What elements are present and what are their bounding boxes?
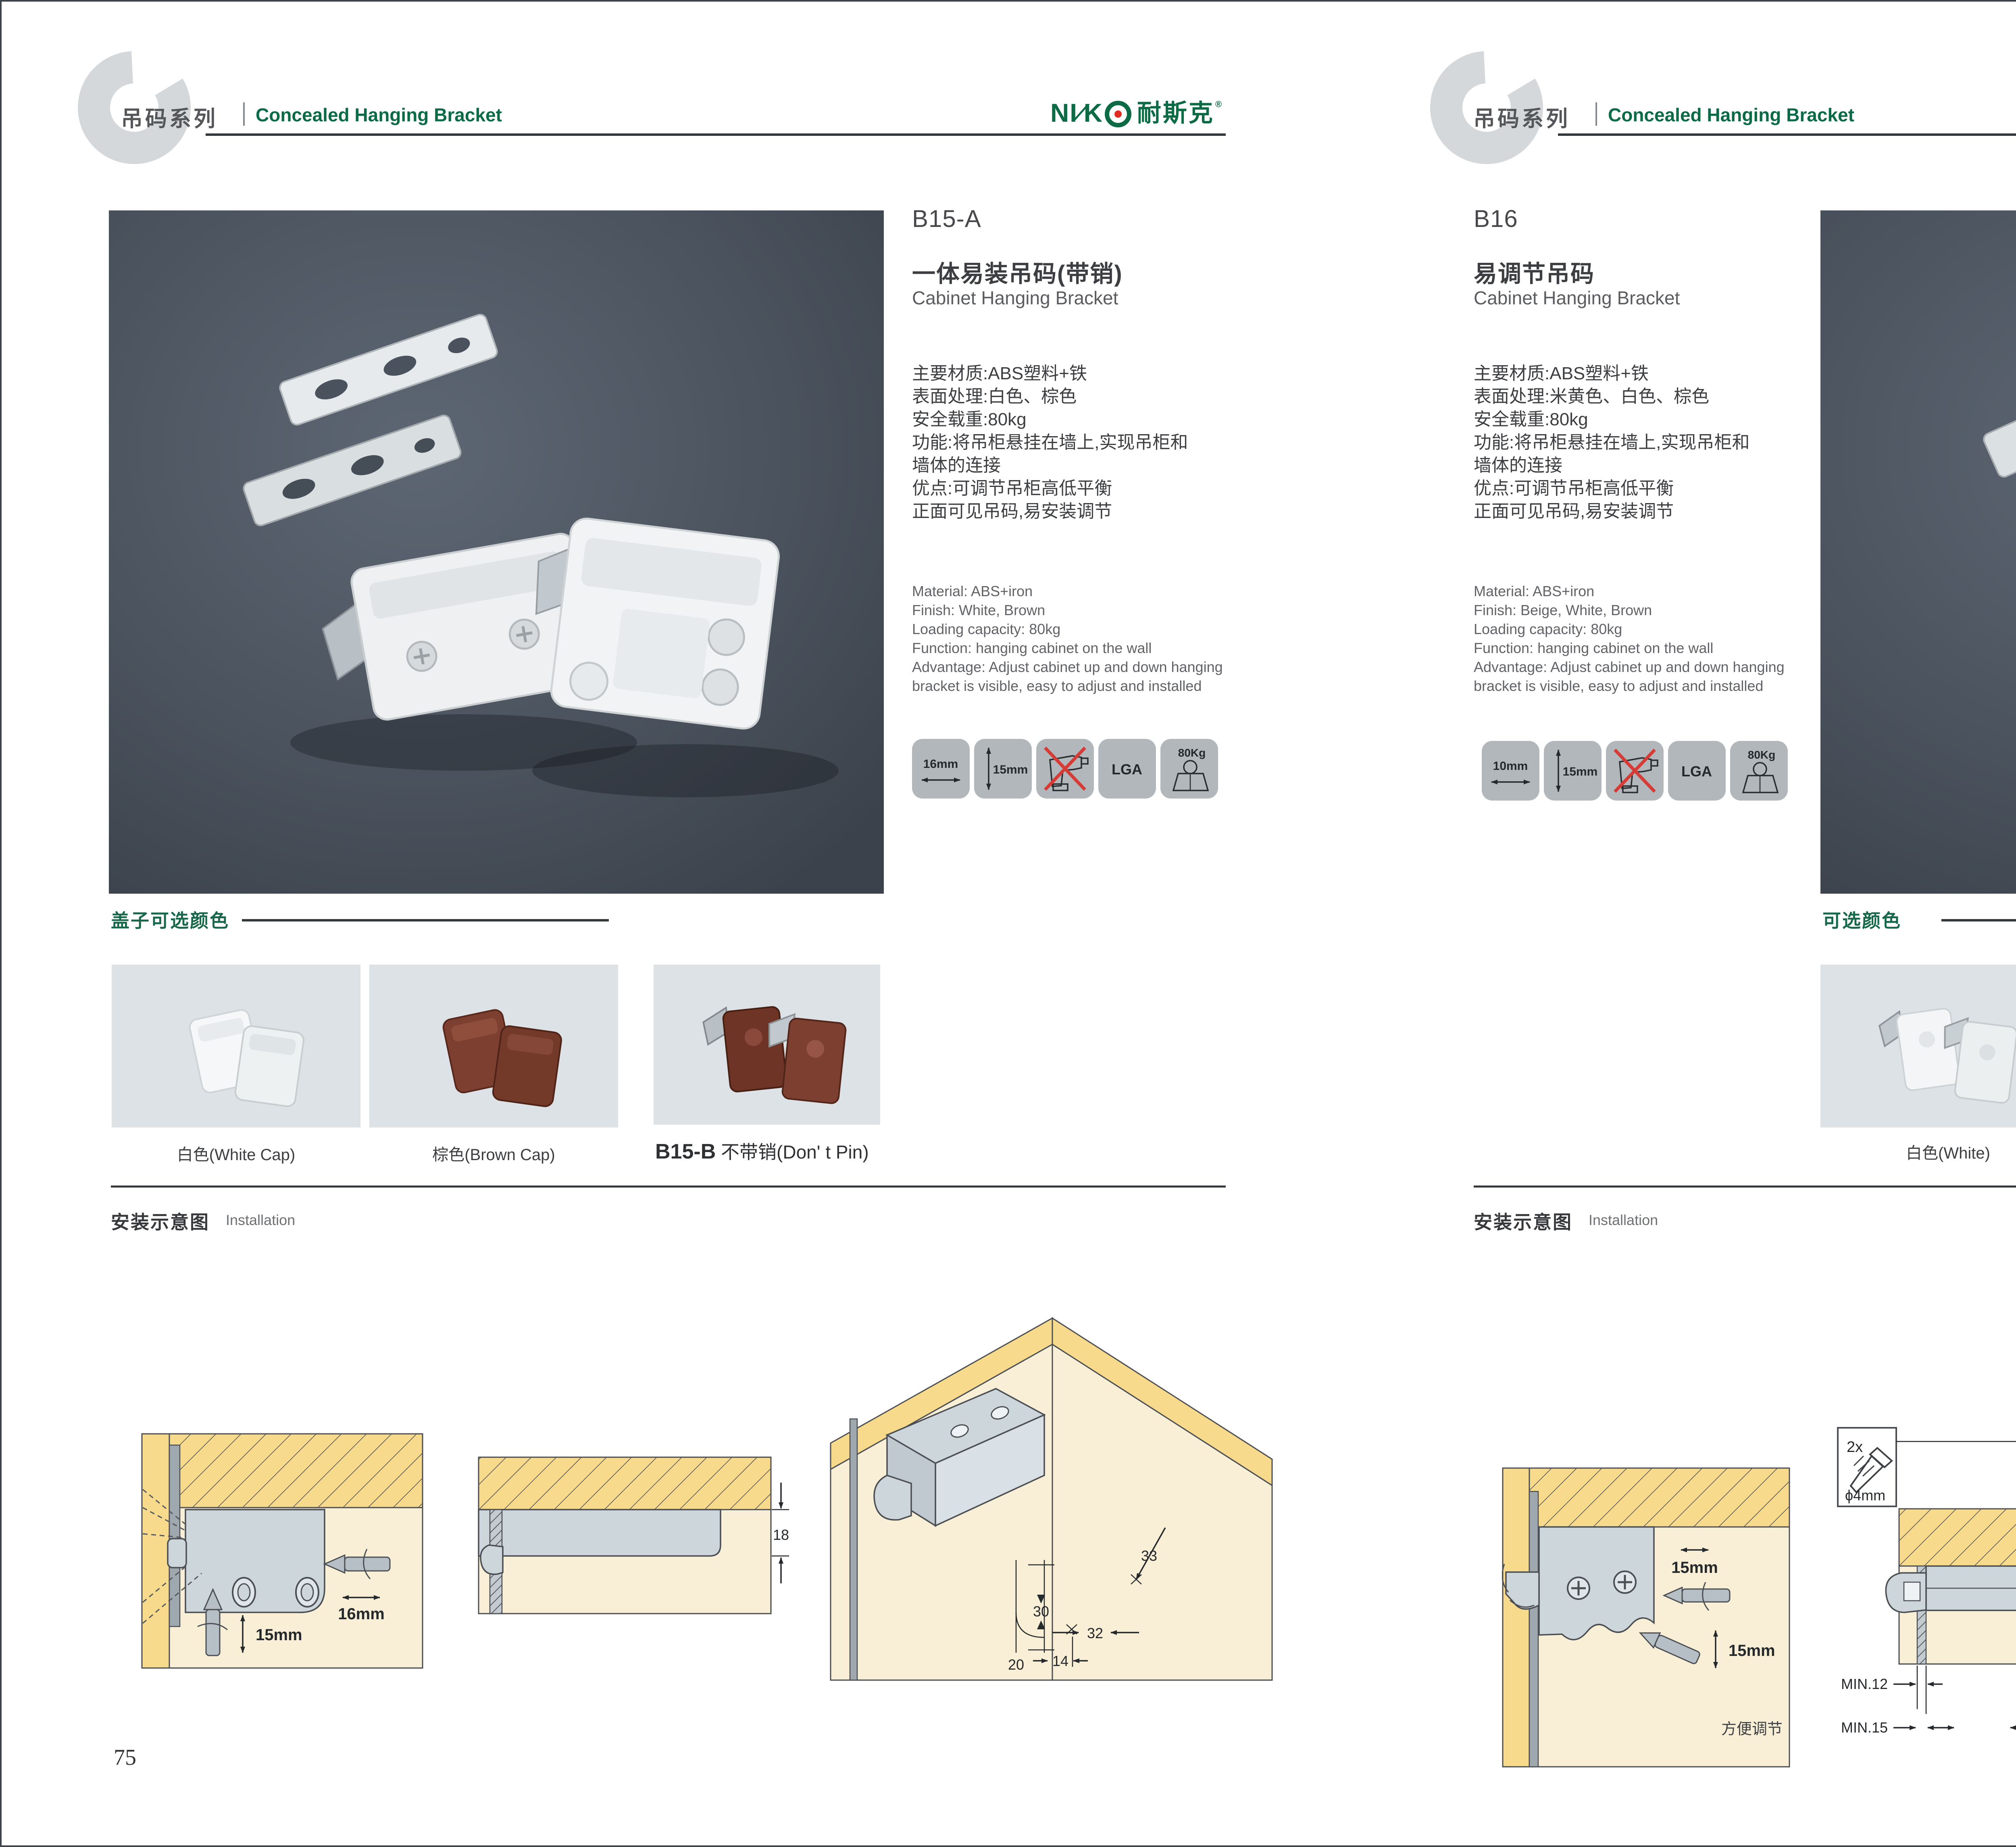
badge-no-drill-icon [1036,739,1094,799]
spec-line: Loading capacity: 80kg [1474,620,1837,639]
svg-text:15mm: 15mm [993,763,1028,776]
series-title-en: Concealed Hanging Bracket [256,104,502,126]
spec-line: 优点:可调节吊柜高低平衡 [912,477,1259,500]
svg-text:32: 32 [1087,1625,1103,1641]
registered-mark: ® [1215,100,1222,109]
spec-line: Finish: Beige, White, Brown [1474,601,1837,620]
badge-lga-icon: LGA [1668,741,1726,801]
badge-no-drill-icon [1606,741,1664,801]
product-name-en: Cabinet Hanging Bracket [1474,287,1680,309]
svg-text:2x: 2x [1847,1439,1863,1456]
badge-width-icon: 16mm [912,739,970,799]
variant-name: 不带销(Don' t Pin) [721,1142,869,1163]
colors-heading: 可选颜色 [1822,906,1901,933]
spec-line: 墙体的连接 [912,454,1259,477]
svg-text:LGA: LGA [1681,763,1712,780]
swatch-caption: 白色(White Cap) [112,1142,360,1165]
spec-line: Loading capacity: 80kg [912,620,1275,639]
spec-line: 正面可见吊码,易安装调节 [1474,500,1820,523]
spec-line: Function: hanging cabinet on the wall [912,639,1275,657]
install-diagram-screw-section: 2x ϕ4mm 19 [1837,1427,2016,1735]
svg-text:20: 20 [1008,1656,1024,1673]
spec-line: 优点:可调节吊柜高低平衡 [1474,477,1820,500]
spec-line: 表面处理:米黄色、白色、棕色 [1474,385,1820,408]
install-heading-zh: 安装示意图 [1474,1208,1572,1234]
spec-line: 主要材质:ABS塑料+铁 [1474,362,1820,385]
spec-line: Finish: White, Brown [912,601,1275,620]
svg-text:15mm: 15mm [1563,765,1598,778]
svg-text:15mm: 15mm [1729,1642,1775,1660]
install-heading-zh: 安装示意图 [111,1208,210,1234]
install-diagram-top-section: 18 [478,1435,790,1614]
spec-line: 墙体的连接 [1474,454,1820,477]
spec-line: 安全载重:80kg [912,408,1259,431]
page-left: 吊码系列 Concealed Hanging Bracket NI∕K耐斯克® [0,0,1352,1847]
svg-text:15mm: 15mm [256,1626,302,1644]
product-name-zh: 一体易装吊码(带销) [912,255,1123,289]
svg-text:80Kg: 80Kg [1178,747,1206,759]
variant-code: B15-B [655,1140,716,1163]
product-photo-right [1820,210,2016,894]
badge-height-icon: 15mm [974,739,1032,799]
install-diagram-wall-section: 15mm 15mm 方便调节 [1502,1467,1790,1768]
swatch-caption: 棕色(Brown Cap) [369,1142,618,1165]
svg-text:14: 14 [1052,1653,1068,1669]
svg-text:10mm: 10mm [1493,759,1528,773]
spec-line: 功能:将吊柜悬挂在墙上,实现吊柜和 [1474,431,1820,454]
product-code: B16 [1474,205,1518,233]
color-swatch-brown [369,965,618,1127]
product-name-en: Cabinet Hanging Bracket [912,287,1118,309]
colors-heading: 盖子可选颜色 [111,906,229,933]
header-divider [1595,102,1597,126]
badge-load-icon: 80Kg [1730,741,1788,801]
feature-badges: 10mm 15mm LGA [1482,741,1792,801]
product-name-zh: 易调节吊码 [1474,255,1595,289]
specs-zh: 主要材质:ABS塑料+铁 表面处理:白色、棕色 安全载重:80kg 功能:将吊柜… [912,362,1259,523]
spec-line: 主要材质:ABS塑料+铁 [912,362,1259,385]
svg-text:ϕ4mm: ϕ4mm [1845,1487,1885,1504]
svg-text:16mm: 16mm [923,757,958,771]
spec-line: Advantage: Adjust cabinet up and down ha… [1474,657,1837,676]
swatch-caption: 白色(White) [1820,1140,2016,1163]
badge-lga-icon: LGA [1098,739,1156,799]
spec-line: Advantage: Adjust cabinet up and down ha… [912,657,1275,676]
series-title-zh: 吊码系列 [1473,101,1570,133]
install-rule [1474,1186,2016,1188]
product-code: B15-A [912,205,981,233]
brand-o-icon [1105,101,1131,127]
spec-line: Function: hanging cabinet on the wall [1474,639,1837,657]
svg-text:LGA: LGA [1112,761,1142,778]
brand-logo: NI∕K耐斯克® [1050,100,1222,127]
page-right: 吊码系列 Concealed Hanging Bracket NI∕K耐斯克® … [1352,0,2016,1847]
svg-text:MIN.15: MIN.15 [1841,1719,1888,1735]
header-rule [206,133,1226,136]
specs-en: Material: ABS+iron Finish: White, Brown … [912,582,1275,695]
badge-load-icon: 80Kg [1160,739,1218,799]
feature-badges: 16mm 15mm LGA [912,739,1223,799]
svg-text:16mm: 16mm [338,1605,385,1623]
spec-line: bracket is visible, easy to adjust and i… [1474,676,1837,695]
brand-latin: NI [1050,100,1078,126]
spec-line: Material: ABS+iron [1474,582,1837,601]
color-swatch-white [112,965,360,1127]
colors-rule [1941,919,2016,921]
svg-text:30: 30 [1033,1603,1049,1620]
colors-rule [242,919,609,921]
spec-line: 安全载重:80kg [1474,408,1820,431]
catalog-spread: 吊码系列 Concealed Hanging Bracket NI∕K耐斯克® [0,0,2016,1847]
variant-caption: B15-B 不带销(Don' t Pin) [655,1138,869,1164]
install-diagram-cabinet-3d: 30 33 32 20 14 [827,1302,1274,1681]
svg-text:18: 18 [773,1527,789,1543]
svg-text:15mm: 15mm [1671,1559,1718,1577]
badge-height-icon: 15mm [1544,741,1602,801]
header-rule [1558,133,2016,136]
brand-red-dot-icon [1114,110,1122,118]
header-divider [243,102,245,126]
spec-line: Material: ABS+iron [912,582,1275,601]
install-heading-en: Installation [226,1212,295,1229]
spec-line: 表面处理:白色、棕色 [912,385,1259,408]
svg-text:80Kg: 80Kg [1748,749,1775,761]
install-diagram-wall-section: 16mm 15mm [141,1433,423,1669]
page-number: 75 [114,1745,136,1770]
svg-text:MIN.12: MIN.12 [1841,1676,1888,1692]
brand-cn: 耐斯克 [1137,100,1214,127]
specs-zh: 主要材质:ABS塑料+铁 表面处理:米黄色、白色、棕色 安全载重:80kg 功能… [1474,362,1820,523]
spec-line: bracket is visible, easy to adjust and i… [912,676,1275,695]
series-title-en: Concealed Hanging Bracket [1608,104,1854,126]
product-photo-left [109,210,884,894]
series-title-zh: 吊码系列 [121,101,218,133]
install-heading-en: Installation [1589,1212,1658,1229]
spec-line: 正面可见吊码,易安装调节 [912,500,1259,523]
brand-k: K [1084,100,1103,126]
install-rule [111,1186,1226,1188]
specs-en: Material: ABS+iron Finish: Beige, White,… [1474,582,1837,695]
spec-line: 功能:将吊柜悬挂在墙上,实现吊柜和 [912,431,1259,454]
svg-text:33: 33 [1141,1547,1157,1564]
color-swatch-variant [654,965,880,1125]
badge-width-icon: 10mm [1482,741,1539,801]
color-swatch-white [1820,965,2016,1127]
svg-text:方便调节: 方便调节 [1721,1721,1783,1738]
